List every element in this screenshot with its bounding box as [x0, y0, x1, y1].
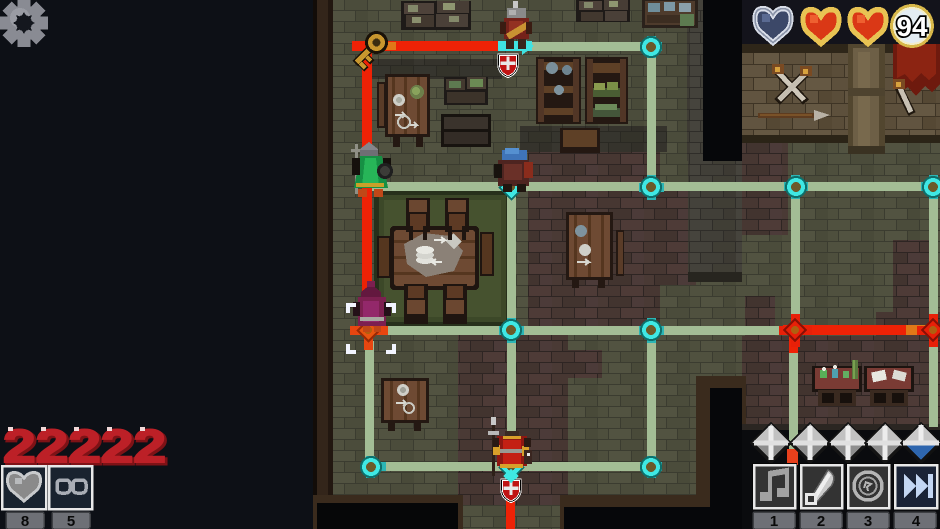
svg-text:94: 94: [896, 11, 928, 42]
svg-text:1: 1: [770, 513, 778, 529]
svg-text:5: 5: [67, 513, 75, 529]
svg-text:4: 4: [912, 513, 921, 529]
svg-text:2: 2: [817, 513, 825, 529]
svg-text:8: 8: [21, 513, 29, 529]
svg-text:3: 3: [864, 513, 872, 529]
